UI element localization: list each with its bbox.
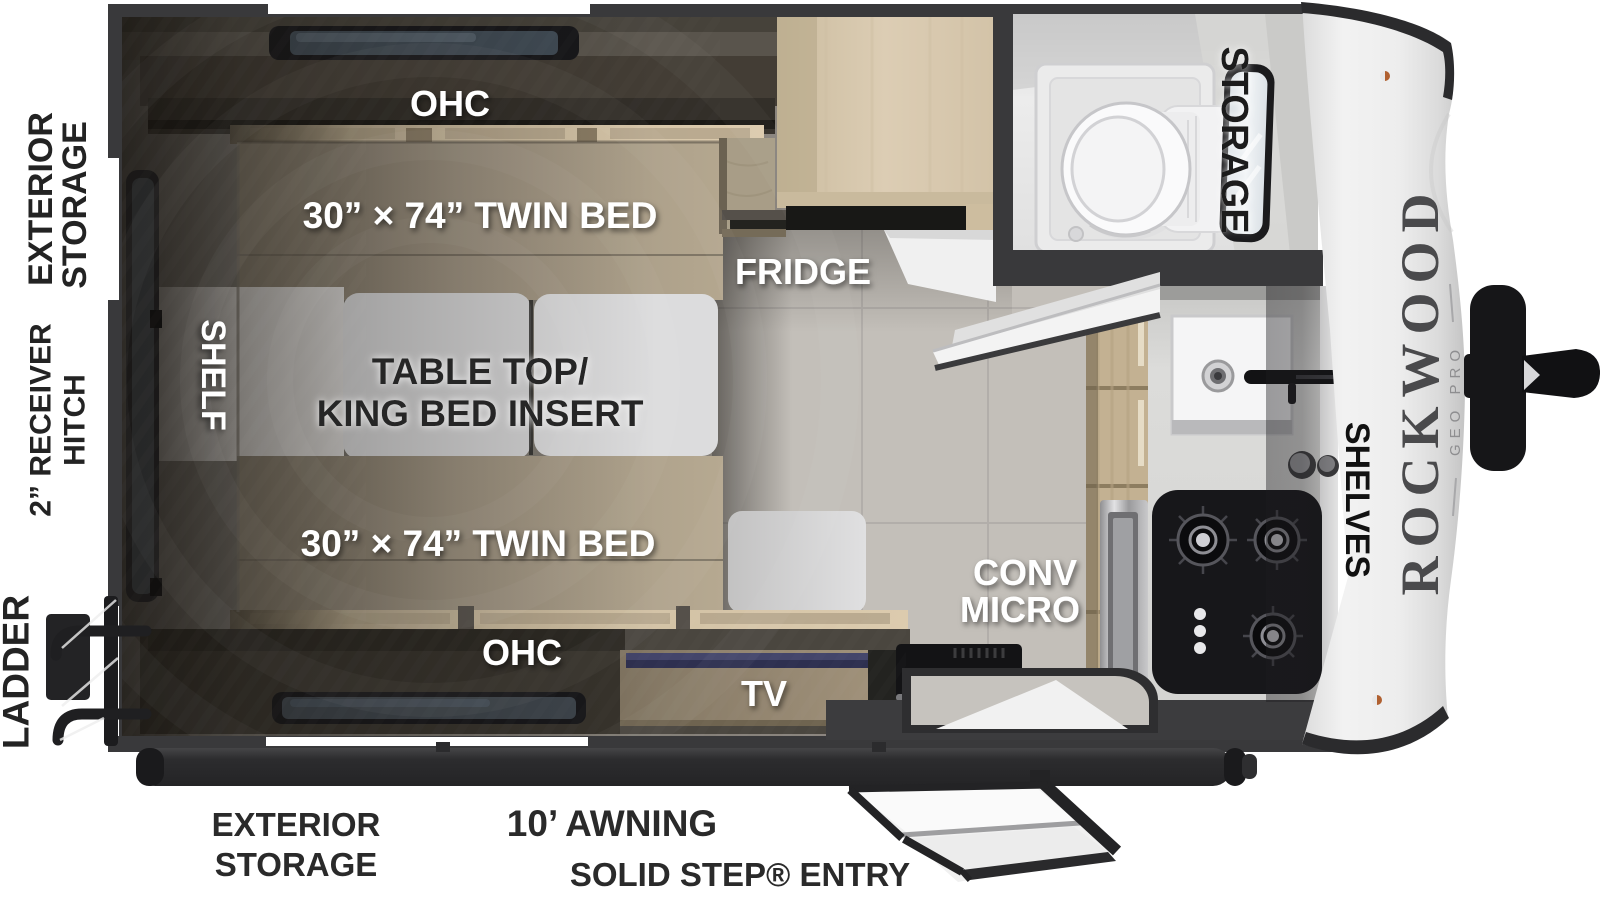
svg-text:2” RECEIVER: 2” RECEIVER <box>25 323 58 517</box>
svg-text:STORAGE: STORAGE <box>215 846 378 883</box>
svg-text:10’ AWNING: 10’ AWNING <box>507 803 717 844</box>
svg-text:HITCH: HITCH <box>59 374 92 466</box>
svg-text:KING BED INSERT: KING BED INSERT <box>317 393 644 434</box>
svg-text:EXTERIOR: EXTERIOR <box>212 806 381 843</box>
svg-text:30” × 74” TWIN BED: 30” × 74” TWIN BED <box>303 195 658 236</box>
svg-text:FRIDGE: FRIDGE <box>735 251 871 292</box>
svg-text:STORAGE: STORAGE <box>56 121 94 289</box>
svg-text:30” × 74” TWIN BED: 30” × 74” TWIN BED <box>301 523 656 564</box>
svg-text:GEO PRO: GEO PRO <box>1447 344 1464 456</box>
svg-text:MICRO: MICRO <box>960 589 1080 630</box>
svg-text:SOLID STEP® ENTRY: SOLID STEP® ENTRY <box>570 856 910 893</box>
svg-text:TABLE TOP/: TABLE TOP/ <box>372 351 589 392</box>
svg-text:SHELVES: SHELVES <box>1338 422 1376 578</box>
svg-text:TV: TV <box>741 673 787 714</box>
svg-text:ROCKWOOD: ROCKWOOD <box>1390 184 1450 595</box>
svg-text:OHC: OHC <box>482 632 562 673</box>
svg-text:SHELF: SHELF <box>194 319 232 430</box>
svg-text:OHC: OHC <box>410 83 490 124</box>
svg-text:CONV: CONV <box>973 552 1077 593</box>
svg-text:EXTERIOR: EXTERIOR <box>22 112 60 286</box>
svg-text:LADDER: LADDER <box>0 595 37 749</box>
svg-text:STORAGE: STORAGE <box>1213 46 1255 233</box>
